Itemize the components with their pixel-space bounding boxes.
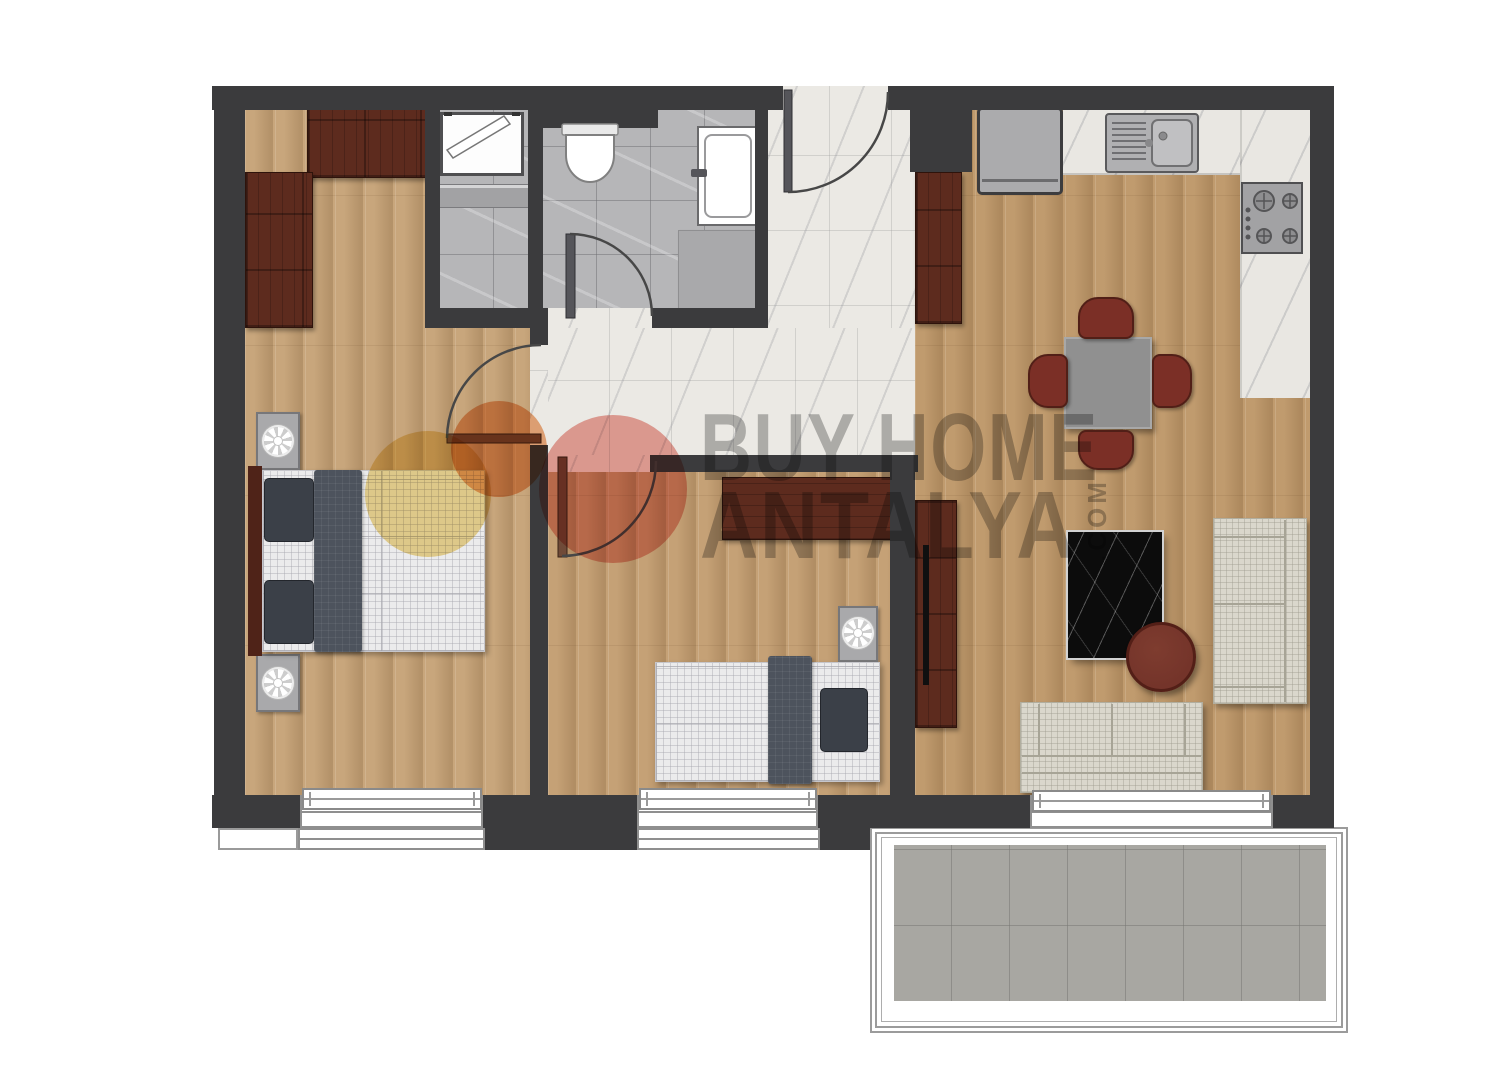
decor-fan-icon xyxy=(264,669,292,697)
wall-master-laundry xyxy=(425,110,440,310)
wall-bedroom2-top xyxy=(650,455,918,472)
sofa-right xyxy=(1213,518,1307,704)
sofa-bottom-backrest-seam xyxy=(1022,772,1201,774)
radiator-bedroom2 xyxy=(639,788,817,810)
balcony-tiles xyxy=(894,845,1326,1001)
wall-hall-kitchen-stub xyxy=(910,110,972,172)
sofa-right-backrest-seam xyxy=(1284,520,1286,702)
wall-master-corridor-stub-top xyxy=(530,328,548,345)
wall-bedroom2-living xyxy=(890,472,915,796)
tv xyxy=(923,545,929,685)
sofa-right-cushion-seam xyxy=(1214,603,1284,605)
wall-left xyxy=(214,86,245,796)
radiator-master xyxy=(302,788,482,810)
sofa-right-armrest-seam xyxy=(1214,536,1284,538)
shower-tray xyxy=(704,134,752,218)
sill-pier xyxy=(485,828,637,850)
floor-plan: BUY HOME ANTALYA .COM xyxy=(0,0,1501,1080)
master-wardrobe-top xyxy=(307,107,427,178)
balcony xyxy=(870,827,1348,1033)
wall-bottom-1 xyxy=(212,795,300,828)
master-door-threshold xyxy=(530,345,548,445)
sill-window-master xyxy=(298,828,485,850)
radiator-living xyxy=(1032,790,1271,812)
wall-bottom-2 xyxy=(483,795,637,828)
sofa-bottom-armrest-seam xyxy=(1184,704,1186,756)
corridor-floor xyxy=(548,328,915,455)
kitchen-counter-right xyxy=(1240,110,1310,398)
washing-machine xyxy=(440,112,524,176)
double-bed-headboard xyxy=(248,466,262,656)
single-bed-blanket xyxy=(768,656,812,784)
laundry-counter xyxy=(437,184,532,208)
wall-laundry-bottom xyxy=(425,308,548,328)
wall-bath-bottom xyxy=(652,308,768,328)
fridge-door-line xyxy=(982,179,1058,182)
bedroom2-dresser xyxy=(722,477,903,540)
sofa-bottom-cushion-seam xyxy=(1111,704,1113,756)
sill-window-bedroom2 xyxy=(637,828,820,850)
bed-pillow xyxy=(264,478,314,542)
sofa-right-armrest-seam xyxy=(1214,686,1284,688)
dining-chair-east xyxy=(1152,354,1192,408)
double-bed-blanket xyxy=(314,470,362,652)
shower-handle xyxy=(691,169,707,177)
wall-bath-hall xyxy=(755,110,768,308)
wall-bottom-4 xyxy=(1273,795,1334,828)
coffee-table xyxy=(1126,622,1196,692)
dining-chair-north xyxy=(1078,297,1134,339)
wall-bottom-3 xyxy=(818,795,1030,828)
tv-unit xyxy=(915,500,957,728)
wall-laundry-bath xyxy=(528,110,543,310)
wall-master-bedroom2 xyxy=(530,455,548,796)
wall-top-left xyxy=(212,86,783,110)
dining-chair-west xyxy=(1028,354,1068,408)
sill-segment xyxy=(218,828,298,850)
dining-table xyxy=(1064,337,1152,429)
wall-top-right xyxy=(888,86,1334,110)
kitchen-tall-cabinet xyxy=(915,172,962,324)
bath-mat xyxy=(678,230,757,310)
wall-bath-niche xyxy=(543,110,658,128)
wall-master-corridor-stub-bottom xyxy=(530,445,548,455)
master-wardrobe-left xyxy=(245,172,313,328)
bedroom2-door-threshold xyxy=(548,455,650,472)
bed-pillow xyxy=(820,688,868,752)
decor-fan-icon xyxy=(844,619,872,647)
sill-pier xyxy=(820,828,870,850)
kitchen-counter-top xyxy=(1063,110,1240,175)
wall-right xyxy=(1310,86,1334,828)
decor-fan-icon xyxy=(264,427,292,455)
fridge xyxy=(977,107,1063,195)
dining-chair-south xyxy=(1078,430,1134,470)
bed-pillow xyxy=(264,580,314,644)
sofa-bottom-armrest-seam xyxy=(1038,704,1040,756)
bathroom-door-threshold xyxy=(548,308,652,328)
